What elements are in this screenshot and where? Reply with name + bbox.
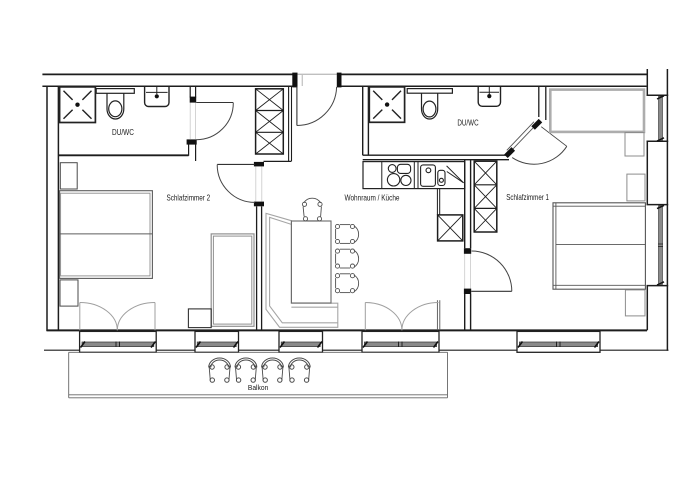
svg-text:DU/WC: DU/WC xyxy=(457,118,478,127)
svg-text:Schlafzimmer 2: Schlafzimmer 2 xyxy=(167,192,211,202)
svg-text:Balkon: Balkon xyxy=(248,383,268,392)
svg-text:Schlafzimmer 1: Schlafzimmer 1 xyxy=(506,192,549,202)
svg-text:Wohnraum / Küche: Wohnraum / Küche xyxy=(345,192,400,202)
svg-text:DU/WC: DU/WC xyxy=(112,128,134,137)
